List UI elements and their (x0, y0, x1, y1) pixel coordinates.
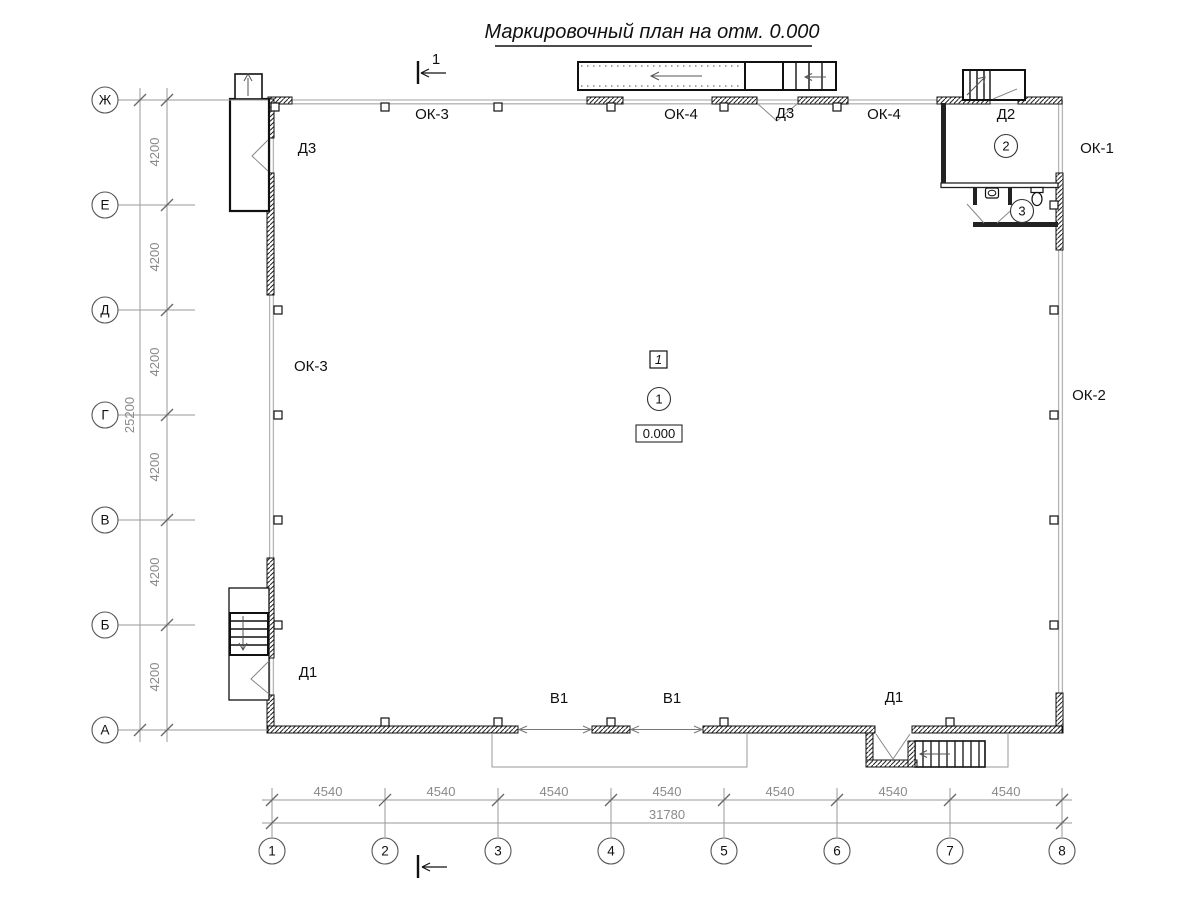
axis-label: Д (100, 303, 109, 318)
axis-label: Е (100, 198, 109, 213)
axis-label: 8 (1058, 844, 1066, 859)
stair-top-right (963, 70, 1025, 100)
axis-label: Ж (99, 93, 112, 108)
room1-number: 1 (655, 392, 662, 407)
dim-row-span: 4200 (147, 558, 162, 587)
dim-row-span: 4200 (147, 243, 162, 272)
sink-fixture (986, 188, 999, 198)
room3-bottom-wall (973, 222, 1058, 227)
label-d1-right: Д1 (885, 689, 904, 706)
axis-label: 3 (494, 844, 502, 859)
page-title: Маркировочный план на отм. 0.000 (484, 21, 819, 43)
axis-label: 6 (833, 844, 841, 859)
col-axes: 1 2 3 4 5 6 7 8 (259, 788, 1075, 864)
label-v1-right: В1 (663, 690, 681, 707)
center-markers: 1 1 0.000 (636, 351, 682, 442)
door-leaf-wc-1 (967, 204, 984, 223)
elevation-value: 0.000 (643, 426, 676, 441)
label-ok3-top: ОК-3 (415, 106, 449, 123)
vestibule-top-left (230, 74, 269, 211)
label-v1-left: В1 (550, 690, 568, 707)
dim-row-span: 4200 (147, 663, 162, 692)
axis-label: 1 (268, 844, 276, 859)
axis-label: Б (101, 618, 110, 633)
toilet-tank (1031, 188, 1043, 193)
dim-col-span: 4540 (427, 784, 456, 799)
dim-col-span: 4540 (766, 784, 795, 799)
section-mark-top: 1 (418, 51, 446, 84)
room2-left-wall (941, 103, 946, 187)
axis-label: 2 (381, 844, 389, 859)
dim-col-span: 4540 (540, 784, 569, 799)
toilet-bowl (1032, 193, 1042, 206)
dim-col-span: 4540 (879, 784, 908, 799)
ramp-top (578, 62, 836, 121)
stair-treads-box (230, 613, 268, 655)
axis-label: В (100, 513, 109, 528)
wc-partition-2 (1008, 187, 1012, 205)
room-tags: 2 3 (995, 135, 1034, 223)
door-leaf-d1-right (876, 734, 910, 759)
axis-label: 4 (607, 844, 615, 859)
label-d3-top: Д3 (776, 105, 795, 122)
dim-col-span: 4540 (314, 784, 343, 799)
pilasters (271, 103, 1058, 726)
dim-col-span: 4540 (653, 784, 682, 799)
hatched-wall-segments (267, 97, 1063, 733)
axis-label: 5 (720, 844, 728, 859)
room-divider-wall (941, 183, 1058, 188)
section-mark-bottom (418, 855, 447, 878)
exit-bottom-right (866, 733, 1008, 767)
room2-number: 2 (1002, 139, 1009, 154)
stair-bottom-left (229, 588, 269, 700)
label-ok2: ОК-2 (1072, 387, 1106, 404)
dim-row-span: 4200 (147, 138, 162, 167)
dim-col-span: 4540 (992, 784, 1021, 799)
label-d1-left: Д1 (299, 664, 318, 681)
axis-label: 7 (946, 844, 954, 859)
exterior-walls-gray (268, 100, 1062, 730)
loading-ramp-outline (492, 733, 747, 767)
section-number: 1 (432, 51, 440, 68)
ramp-landing (745, 62, 783, 90)
label-ok1: ОК-1 (1080, 140, 1114, 157)
dim-row-span: 4200 (147, 348, 162, 377)
dim-col-total: 31780 (649, 807, 685, 822)
label-ok3-left: ОК-3 (294, 358, 328, 375)
dim-row-total: 25200 (122, 397, 137, 433)
label-d2: Д2 (997, 106, 1016, 123)
wc-partition-1 (973, 187, 977, 205)
floor-plan-drawing: Маркировочный план на отм. 0.000 (0, 0, 1200, 900)
label-ok4-right: ОК-4 (867, 106, 901, 123)
room3-number: 3 (1018, 204, 1025, 219)
dim-row-span: 4200 (147, 453, 162, 482)
axis-label: Г (101, 408, 109, 423)
axis-label: А (100, 723, 109, 738)
zone-marker-number: 1 (655, 352, 662, 367)
label-d3-left: Д3 (298, 140, 317, 157)
porch-outline (985, 733, 1008, 767)
floor-plan-page: Маркировочный план на отм. 0.000 (0, 0, 1200, 900)
title-block: Маркировочный план на отм. 0.000 (484, 21, 819, 46)
label-ok4-left: ОК-4 (664, 106, 698, 123)
